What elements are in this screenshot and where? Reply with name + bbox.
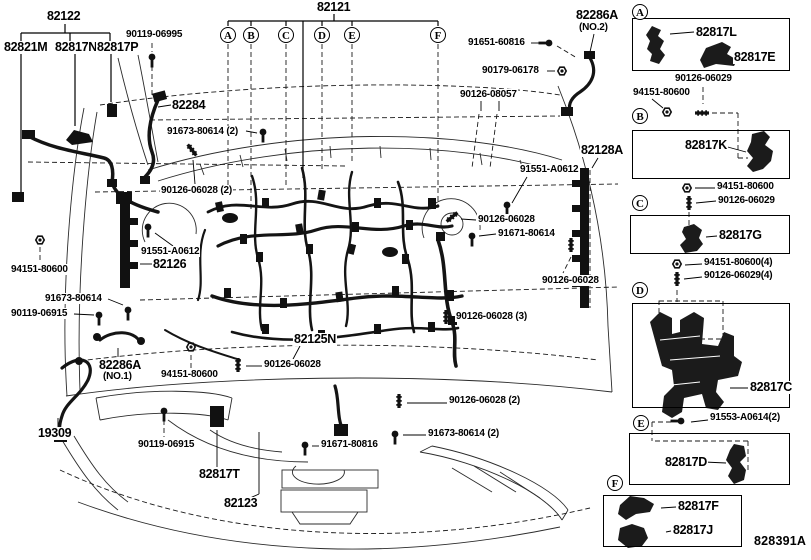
part-label: 82286A — [575, 9, 619, 22]
detail-section-letter-f: F — [607, 475, 623, 491]
detail-fastener-label: 94151-80600(4) — [703, 257, 773, 268]
part-label: 19309 — [37, 427, 72, 440]
part-label: 82128A — [580, 144, 624, 157]
detail-fastener-label: 91553-A0614(2) — [709, 412, 781, 423]
fastener-label: 91671-80614 — [497, 228, 556, 239]
figure-code: 828391A — [754, 534, 806, 548]
detail-box-f — [603, 495, 742, 547]
detail-fastener-label: 90126-06029 — [674, 73, 733, 84]
detail-section-letter-b: B — [632, 108, 648, 124]
fastener-label: 91551-A0612 — [519, 164, 579, 175]
fastener-label: 91673-80614 (2) — [427, 428, 500, 439]
parts-diagram-page: 8212282821M82817N82817P90119-06995821218… — [0, 0, 811, 560]
detail-fastener-label: 90126-06029(4) — [703, 270, 773, 281]
connector-letter-e: E — [344, 27, 360, 43]
fastener-label: 90126-06028 — [263, 359, 322, 370]
fastener-label: (NO.2) — [578, 22, 609, 33]
fastener-icons — [36, 40, 709, 456]
part-label: 82123 — [223, 497, 258, 510]
connector-letter-a: A — [220, 27, 236, 43]
connector-letter-c: C — [278, 27, 294, 43]
connector-letter-d: D — [314, 27, 330, 43]
fastener-label: 90119-06915 — [137, 439, 195, 450]
fastener-label: (NO.1) — [102, 371, 133, 382]
connector-letter-b: B — [243, 27, 259, 43]
detail-part-label: 82817F — [677, 500, 720, 513]
fastener-label: 90126-06028 (2) — [448, 395, 521, 406]
fastener-label: 94151-80600 — [10, 264, 69, 275]
detail-section-letter-c: C — [632, 195, 648, 211]
fastener-label: 91651-60816 — [467, 37, 526, 48]
fastener-label: 91671-80816 — [320, 439, 379, 450]
detail-part-label: 82817J — [672, 524, 714, 537]
detail-section-letter-a: A — [632, 4, 648, 20]
detail-part-label: 82817L — [695, 26, 738, 39]
fastener-label: 90126-06028 (3) — [455, 311, 528, 322]
fastener-label: 90119-06915 — [10, 308, 68, 319]
detail-part-label: 82817D — [664, 456, 708, 469]
detail-section-letter-e: E — [633, 415, 649, 431]
detail-fastener-label: 94151-80600 — [632, 87, 691, 98]
fastener-label: 90126-08057 — [459, 89, 518, 100]
detail-part-label: 82817C — [749, 381, 793, 394]
fastener-label: 91673-80614 (2) — [166, 126, 239, 137]
detail-part-label: 82817E — [733, 51, 776, 64]
part-label: 82126 — [152, 258, 187, 271]
fastener-label: 90126-06028 (2) — [160, 185, 233, 196]
detail-part-label: 82817K — [684, 139, 728, 152]
detail-box-e — [629, 433, 790, 485]
fastener-label: 91551-A0612 — [140, 246, 200, 257]
part-label: 82817P — [96, 41, 139, 54]
connector-letter-f: F — [430, 27, 446, 43]
part-label: 82821M — [3, 41, 48, 54]
detail-section-letter-d: D — [632, 282, 648, 298]
fastener-label: 90119-06995 — [125, 29, 183, 40]
fastener-label: 94151-80600 — [160, 369, 219, 380]
fastener-label: 90179-06178 — [481, 65, 540, 76]
part-label: 82817T — [198, 468, 241, 481]
part-label: 82121 — [316, 1, 351, 14]
fastener-label: 91673-80614 — [44, 293, 103, 304]
detail-part-label: 82817G — [718, 229, 763, 242]
fastener-label: 90126-06028 — [541, 275, 600, 286]
detail-box-c — [630, 215, 790, 254]
part-label: 82125N — [293, 333, 337, 346]
part-label: 82122 — [46, 10, 81, 23]
detail-fastener-label: 90126-06029 — [717, 195, 776, 206]
detail-fastener-label: 94151-80600 — [716, 181, 775, 192]
part-label: 82817N — [54, 41, 98, 54]
part-label: 82284 — [171, 99, 206, 112]
fastener-label: 90126-06028 — [477, 214, 536, 225]
